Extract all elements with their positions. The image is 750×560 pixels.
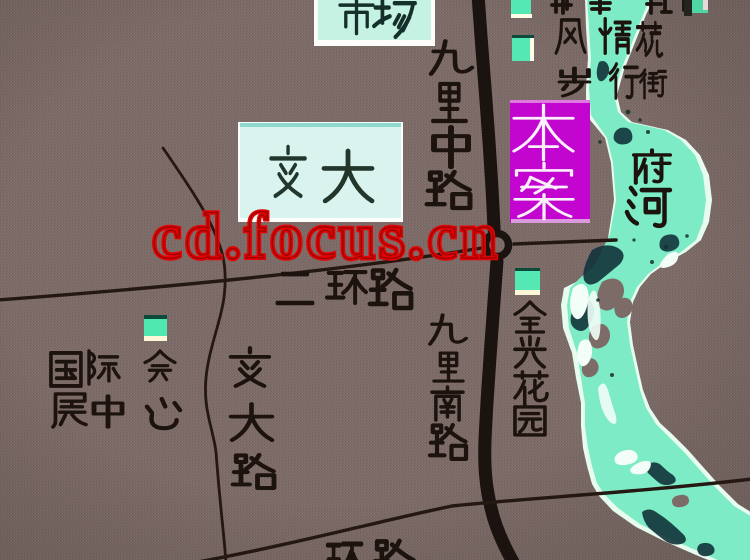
svg-text:cd.focus.cn: cd.focus.cn	[152, 200, 497, 273]
